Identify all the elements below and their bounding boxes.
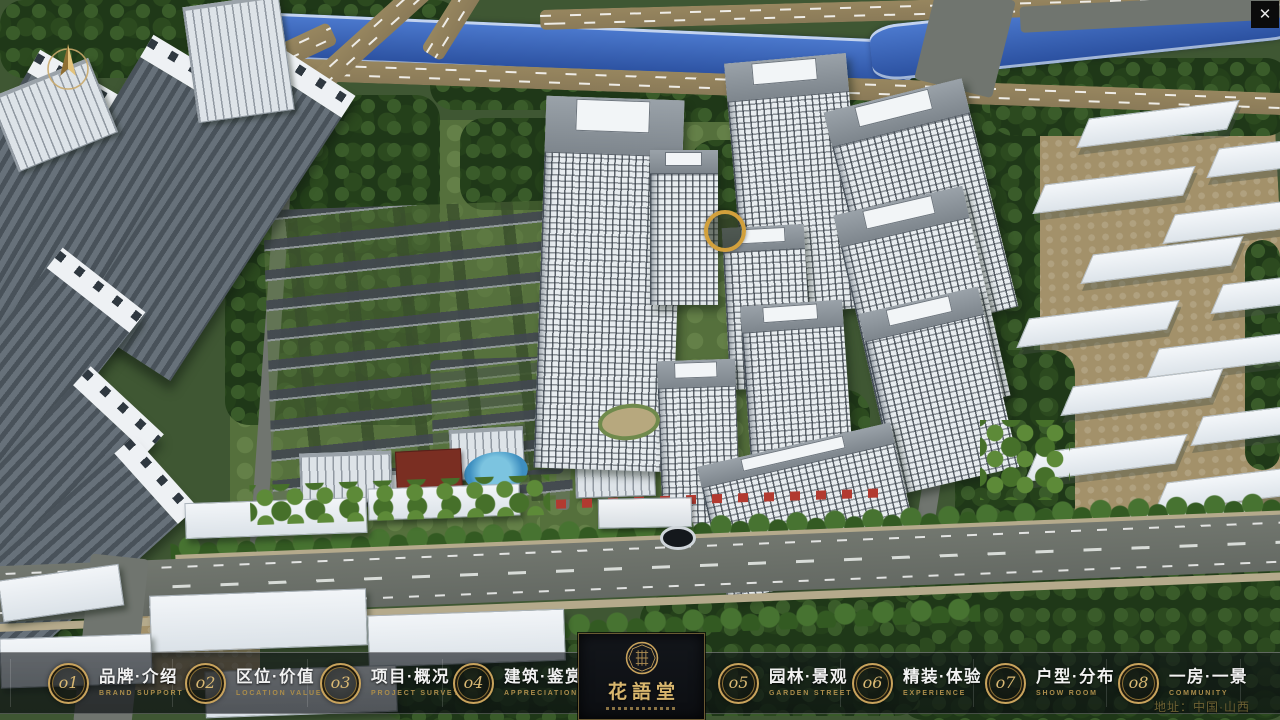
brand-subtext-decoration	[606, 707, 678, 710]
menu-item-garden-landscape[interactable]: o5 园林·景观 GARDEN STREET	[718, 653, 852, 713]
menu-item-sublabel: BRAND SUPPORT	[99, 690, 183, 697]
menu-item-sublabel: PROJECT SURVEY	[371, 690, 460, 697]
close-icon: ✕	[1259, 7, 1272, 22]
menu-number-badge: o5	[718, 663, 759, 704]
brand-name: 花語堂	[603, 677, 680, 704]
menu-item-label: 园林·景观	[769, 669, 852, 686]
mid-rise-block	[182, 0, 294, 123]
menu-item-sublabel: COMMUNITY	[1169, 690, 1248, 697]
menu-item-label: 精装·体验	[903, 669, 982, 686]
menu-number-badge: o3	[320, 663, 361, 704]
menu-item-label: 户型·分布	[1036, 669, 1115, 686]
nav-divider	[10, 659, 11, 707]
menu-number-badge: o2	[185, 663, 226, 704]
tree-accent	[980, 420, 1070, 500]
low-building-south	[149, 588, 368, 653]
entrance-gate-canopy	[598, 497, 693, 529]
compass-icon[interactable]	[41, 36, 95, 96]
gold-pavilion-ring	[704, 210, 746, 252]
menu-item-sublabel: APPRECIATION	[504, 690, 583, 697]
menu-item-label: 建筑·鉴赏	[504, 669, 583, 686]
menu-item-label: 品牌·介绍	[99, 669, 183, 686]
menu-item-sublabel: LOCATION VALUE	[236, 690, 322, 697]
menu-number-badge: o6	[852, 663, 893, 704]
entrance-plaza-circle	[660, 526, 696, 550]
menu-number-badge: o4	[453, 663, 494, 704]
presentation-app-window: ✕ o1 品牌·介绍 BRAND SUPPORT o2 区位·价值 LOCATI…	[0, 0, 1280, 720]
menu-item-brand-intro[interactable]: o1 品牌·介绍 BRAND SUPPORT	[48, 653, 183, 713]
menu-item-label: 一房·一景	[1169, 669, 1248, 686]
menu-number-badge: o7	[985, 663, 1026, 704]
menu-item-architecture-appreciation[interactable]: o4 建筑·鉴赏 APPRECIATION	[453, 653, 583, 713]
menu-item-sublabel: SHOW ROOM	[1036, 690, 1115, 697]
menu-item-sublabel: EXPERIENCE	[903, 690, 982, 697]
menu-item-location-value[interactable]: o2 区位·价值 LOCATION VALUE	[185, 653, 322, 713]
menu-item-interior-experience[interactable]: o6 精装·体验 EXPERIENCE	[852, 653, 982, 713]
close-button[interactable]: ✕	[1251, 1, 1279, 28]
menu-item-sublabel: GARDEN STREET	[769, 690, 852, 697]
brand-seal-icon	[625, 641, 659, 675]
menu-item-label: 项目·概况	[371, 669, 460, 686]
menu-number-badge: o8	[1118, 663, 1159, 704]
project-address: 地址：中国·山西	[1154, 698, 1250, 715]
brand-logo-panel[interactable]: 花語堂	[578, 633, 705, 720]
menu-item-label: 区位·价值	[236, 669, 322, 686]
menu-item-floorplan-distribution[interactable]: o7 户型·分布 SHOW ROOM	[985, 653, 1115, 713]
menu-number-badge: o1	[48, 663, 89, 704]
aerial-masterplan-viewport[interactable]	[0, 0, 1280, 720]
menu-item-project-overview[interactable]: o3 项目·概况 PROJECT SURVEY	[320, 653, 460, 713]
